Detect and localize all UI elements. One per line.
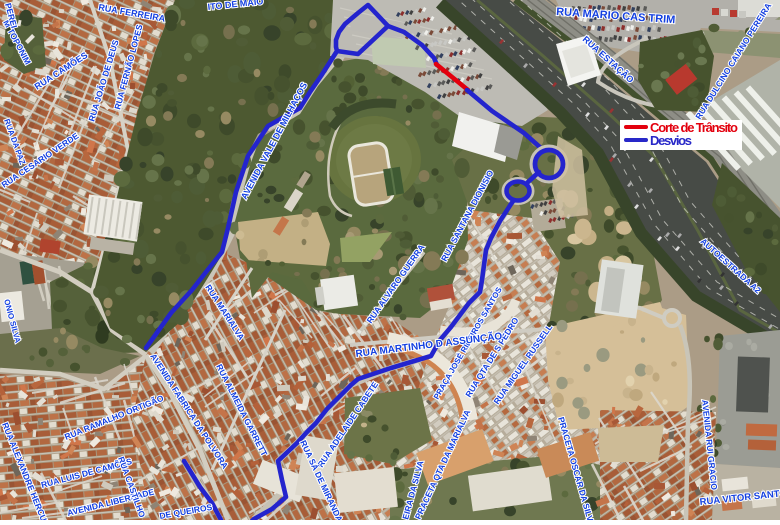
svg-text:Desvios: Desvios [650, 133, 692, 148]
